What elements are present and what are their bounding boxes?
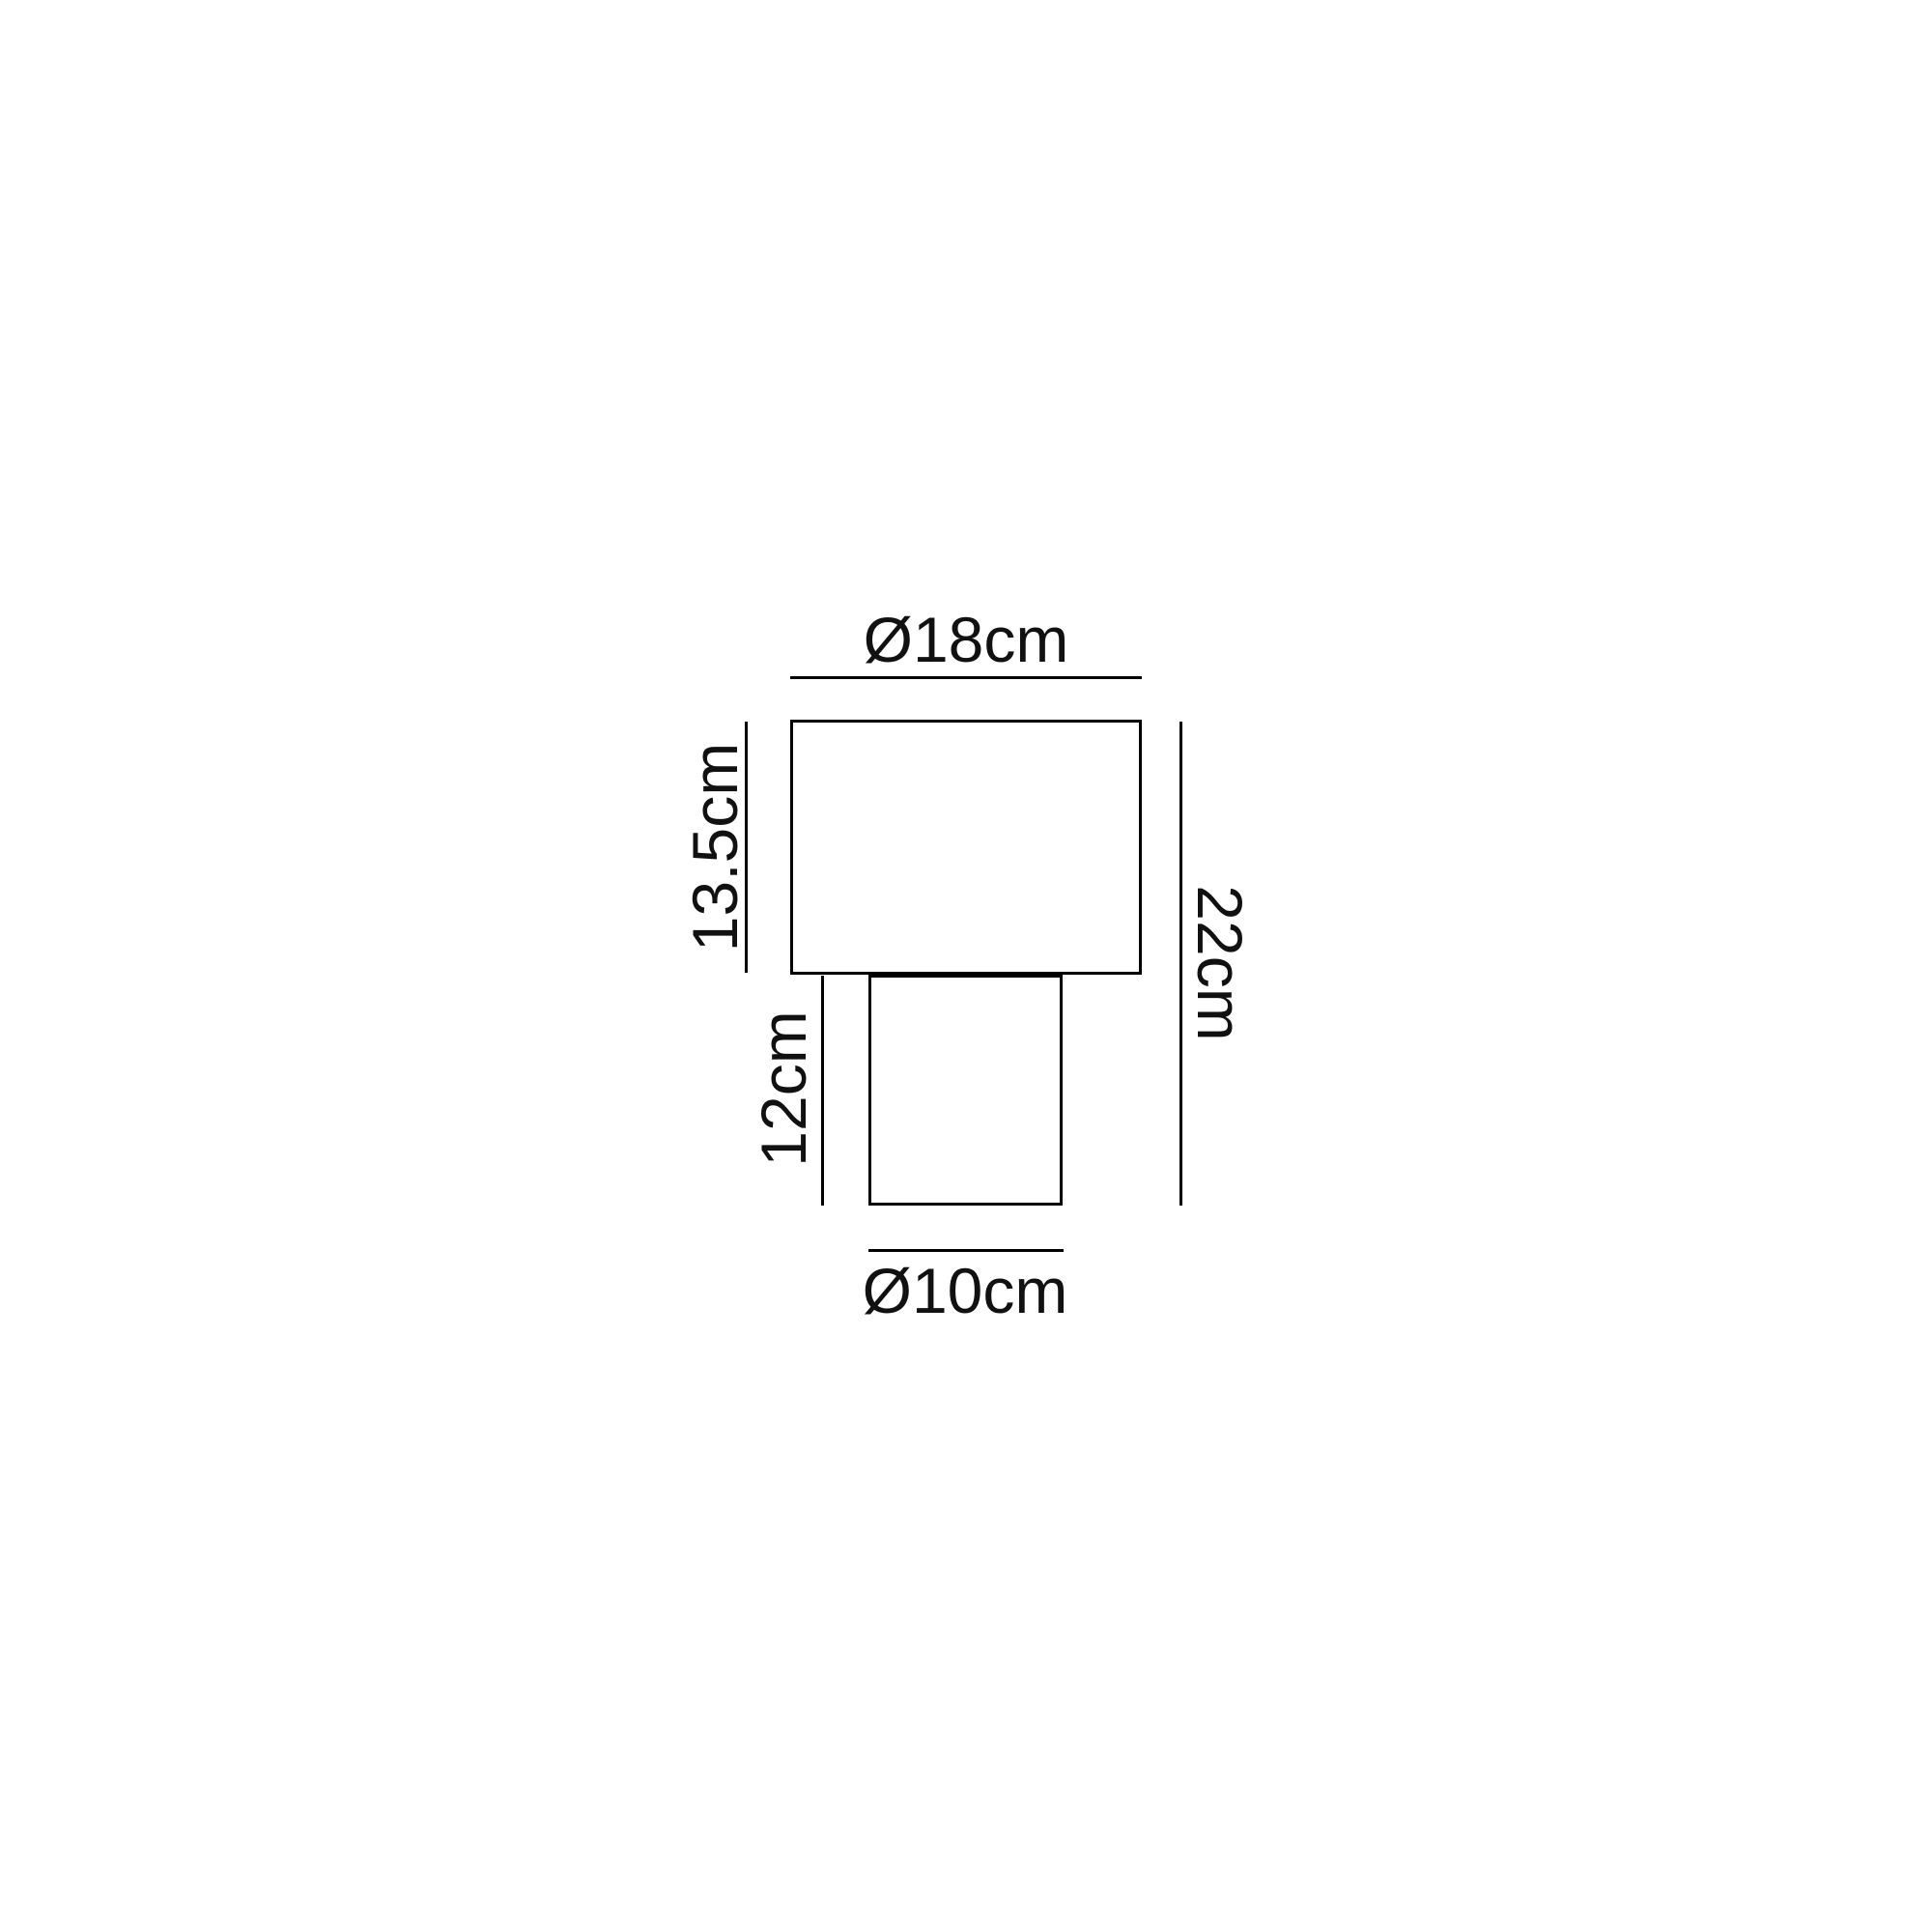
shade-height-label: 13.5cm	[683, 743, 747, 952]
base-diameter-dim-line	[868, 1249, 1064, 1252]
shade-diameter-label: Ø18cm	[864, 608, 1069, 671]
shade-diameter-dim-line	[790, 676, 1142, 679]
total-height-label: 22cm	[1188, 885, 1252, 1040]
base-height-label: 12cm	[752, 1010, 815, 1166]
base-diameter-label: Ø10cm	[863, 1259, 1068, 1322]
dimension-diagram: Ø18cm 13.5cm 12cm 22cm Ø10cm	[0, 0, 1932, 1932]
total-height-dim-line	[1179, 722, 1182, 1206]
lamp-shade-outline	[790, 720, 1142, 975]
base-height-dim-line	[821, 976, 824, 1206]
lamp-base-outline	[868, 975, 1063, 1206]
